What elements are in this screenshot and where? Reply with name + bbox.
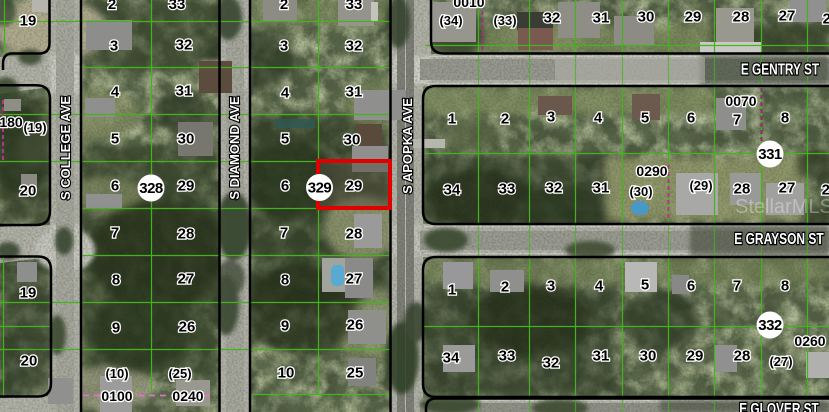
svg-text:2: 2 (280, 0, 288, 13)
svg-text:328: 328 (139, 180, 163, 197)
svg-text:180: 180 (0, 114, 23, 130)
svg-text:0290: 0290 (636, 163, 667, 179)
svg-text:332: 332 (758, 317, 782, 334)
svg-text:3: 3 (547, 278, 555, 295)
svg-text:E GRAYSON ST: E GRAYSON ST (734, 229, 824, 247)
svg-text:26: 26 (179, 319, 196, 336)
svg-text:27: 27 (779, 180, 796, 197)
svg-text:28: 28 (734, 348, 751, 365)
svg-text:5: 5 (641, 277, 649, 294)
svg-text:7: 7 (111, 225, 119, 242)
svg-text:S APOPKA AVE: S APOPKA AVE (400, 98, 415, 194)
svg-text:(27): (27) (769, 354, 792, 369)
svg-text:10: 10 (278, 365, 295, 382)
svg-text:19: 19 (20, 285, 37, 302)
svg-text:26: 26 (347, 317, 364, 334)
svg-text:3: 3 (110, 38, 118, 55)
svg-text:0070: 0070 (725, 93, 756, 109)
svg-text:31: 31 (593, 10, 610, 27)
svg-text:(25): (25) (168, 366, 191, 381)
svg-text:29: 29 (685, 9, 702, 26)
svg-text:4: 4 (111, 84, 120, 101)
svg-text:E GENTRY ST: E GENTRY ST (741, 60, 820, 78)
svg-text:30: 30 (178, 131, 195, 148)
svg-text:(10): (10) (105, 366, 128, 381)
svg-text:31: 31 (346, 84, 363, 101)
svg-text:4: 4 (594, 110, 603, 127)
svg-text:2: 2 (501, 279, 509, 296)
svg-text:0260: 0260 (794, 333, 825, 349)
svg-text:StellarMLS: StellarMLS (735, 196, 829, 218)
svg-text:33: 33 (346, 0, 363, 13)
svg-text:7: 7 (280, 225, 288, 242)
svg-text:7: 7 (733, 112, 741, 129)
svg-text:(34): (34) (439, 13, 462, 28)
svg-text:32: 32 (346, 38, 363, 55)
svg-text:28: 28 (733, 9, 750, 26)
svg-text:4: 4 (281, 85, 290, 102)
svg-text:29: 29 (178, 178, 195, 195)
svg-text:34: 34 (444, 182, 461, 199)
svg-text:28: 28 (178, 226, 195, 243)
svg-text:19: 19 (20, 13, 37, 30)
svg-text:331: 331 (758, 146, 782, 163)
svg-text:31: 31 (593, 348, 610, 365)
svg-text:8: 8 (112, 272, 120, 289)
svg-text:5: 5 (111, 131, 119, 148)
svg-text:1: 1 (448, 282, 456, 299)
svg-text:30: 30 (640, 348, 657, 365)
svg-text:4: 4 (595, 278, 604, 295)
svg-text:34: 34 (443, 350, 460, 367)
svg-text:27: 27 (178, 271, 195, 288)
svg-text:S COLLEGE AVE: S COLLEGE AVE (58, 96, 73, 200)
svg-text:25: 25 (347, 365, 364, 382)
svg-text:0100: 0100 (101, 388, 132, 404)
svg-text:2: 2 (108, 0, 116, 13)
svg-text:S DIAMOND AVE: S DIAMOND AVE (227, 96, 242, 200)
svg-text:6: 6 (687, 110, 695, 127)
svg-text:7: 7 (733, 278, 741, 295)
svg-text:5: 5 (281, 131, 289, 148)
svg-text:8: 8 (281, 272, 289, 289)
svg-text:6: 6 (281, 178, 289, 195)
svg-text:329: 329 (308, 180, 332, 197)
svg-text:31: 31 (176, 83, 193, 100)
svg-text:(30): (30) (629, 184, 652, 199)
svg-text:6: 6 (687, 278, 695, 295)
svg-text:9: 9 (281, 318, 289, 335)
svg-text:9: 9 (112, 320, 120, 337)
svg-text:30: 30 (638, 9, 655, 26)
svg-text:32: 32 (546, 180, 563, 197)
svg-text:32: 32 (544, 10, 561, 27)
svg-text:8: 8 (781, 110, 789, 127)
svg-text:26: 26 (823, 11, 829, 28)
svg-text:29: 29 (346, 178, 363, 195)
svg-text:0010: 0010 (453, 0, 484, 10)
svg-text:0240: 0240 (172, 388, 203, 404)
svg-text:20: 20 (20, 183, 37, 200)
svg-text:1: 1 (448, 111, 456, 128)
svg-text:28: 28 (346, 226, 363, 243)
svg-text:33: 33 (169, 0, 186, 13)
svg-text:27: 27 (779, 8, 796, 25)
svg-text:20: 20 (21, 353, 38, 370)
svg-text:(29): (29) (689, 178, 712, 193)
svg-text:27: 27 (346, 271, 363, 288)
svg-text:8: 8 (781, 278, 789, 295)
svg-text:5: 5 (641, 110, 649, 127)
svg-text:33: 33 (499, 348, 516, 365)
svg-text:E GLOVER ST: E GLOVER ST (739, 399, 819, 412)
svg-text:32: 32 (176, 37, 193, 54)
svg-text:29: 29 (687, 348, 704, 365)
svg-text:6: 6 (111, 178, 119, 195)
svg-text:2: 2 (501, 111, 509, 128)
svg-text:3: 3 (280, 38, 288, 55)
svg-text:(19): (19) (23, 120, 46, 135)
svg-text:(33): (33) (493, 13, 516, 28)
svg-text:32: 32 (543, 355, 560, 372)
svg-text:3: 3 (547, 109, 555, 126)
svg-text:28: 28 (734, 181, 751, 198)
svg-text:31: 31 (593, 180, 610, 197)
svg-text:30: 30 (344, 132, 361, 149)
svg-text:33: 33 (499, 181, 516, 198)
